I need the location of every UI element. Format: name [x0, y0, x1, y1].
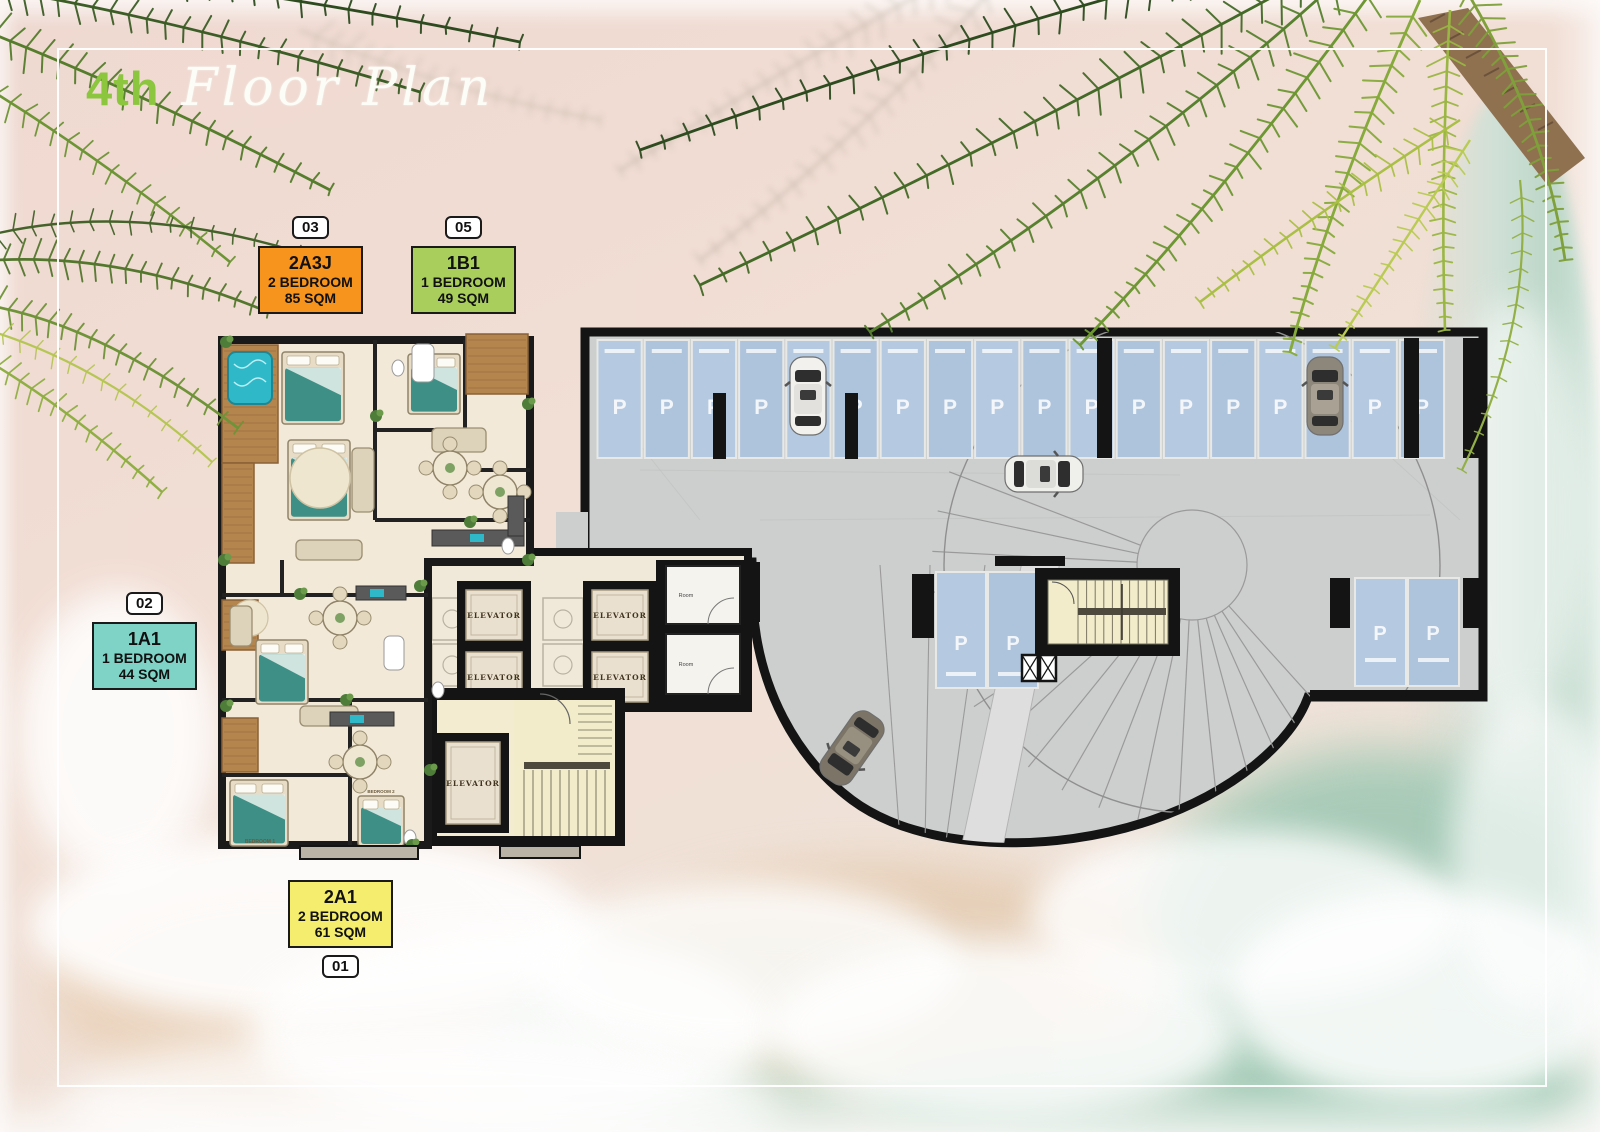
unit-number-badge: 02: [126, 592, 163, 615]
unit-area: 49 SQM: [421, 290, 506, 307]
floor-plan-poster: PPPPPPPPPPPPPPPPPPPPELEVATORELEVATORELEV…: [0, 0, 1600, 1132]
unit-area: 61 SQM: [298, 924, 383, 941]
unit-info-box: 1B1 1 BEDROOM 49 SQM: [411, 246, 516, 314]
unit-info-box: 2A1 2 BEDROOM 61 SQM: [288, 880, 393, 948]
unit-number-badge: 03: [292, 216, 329, 239]
unit-area: 44 SQM: [102, 666, 187, 683]
unit-code: 1A1: [102, 629, 187, 650]
unit-number-badge: 01: [322, 955, 359, 978]
unit-tag-05: 05 1B1 1 BEDROOM 49 SQM: [411, 216, 516, 314]
unit-type: 2 BEDROOM: [298, 908, 383, 925]
beach-sand-background: [0, 0, 1600, 1132]
unit-code: 1B1: [421, 253, 506, 274]
unit-area: 85 SQM: [268, 290, 353, 307]
unit-type: 1 BEDROOM: [421, 274, 506, 291]
unit-code: 2A1: [298, 887, 383, 908]
floor-plan-script: Floor Plan: [182, 58, 495, 118]
unit-number-badge: 05: [445, 216, 482, 239]
unit-type: 2 BEDROOM: [268, 274, 353, 291]
unit-code: 2A3J: [268, 253, 353, 274]
floor-number: 4th: [86, 61, 160, 116]
unit-type: 1 BEDROOM: [102, 650, 187, 667]
unit-tag-01: 2A1 2 BEDROOM 61 SQM 01: [288, 880, 393, 978]
unit-tag-03: 03 2A3J 2 BEDROOM 85 SQM: [258, 216, 363, 314]
unit-info-box: 2A3J 2 BEDROOM 85 SQM: [258, 246, 363, 314]
unit-info-box: 1A1 1 BEDROOM 44 SQM: [92, 622, 197, 690]
page-title: 4th Floor Plan: [86, 58, 494, 118]
unit-tag-02: 02 1A1 1 BEDROOM 44 SQM: [92, 592, 197, 690]
